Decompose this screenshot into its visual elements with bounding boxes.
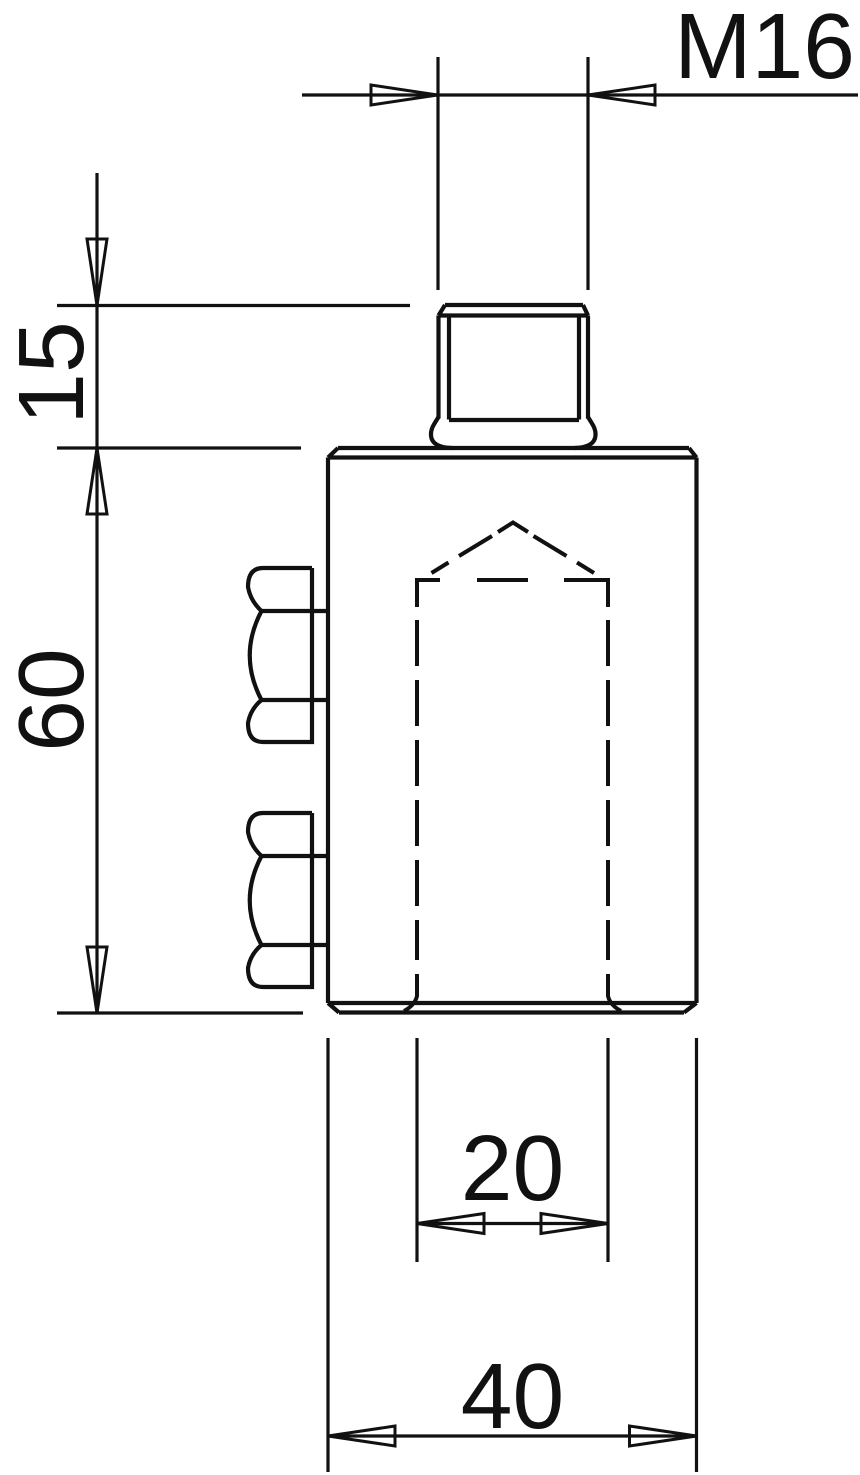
threaded-stud — [431, 305, 596, 448]
bore-width-label: 20 — [461, 1116, 564, 1220]
dimension-stud-length: 15 — [0, 173, 410, 1013]
stud-length-label: 15 — [0, 321, 103, 424]
dimension-bore-width: 20 — [417, 1038, 608, 1262]
thread-label: M16 — [674, 0, 855, 98]
part-body — [328, 448, 697, 1013]
hidden-bore — [404, 523, 621, 1012]
hex-bolt-upper — [248, 568, 329, 742]
hex-bolt-lower — [248, 813, 329, 987]
bore-drill-cone-dashes — [432, 523, 595, 574]
dimension-thread: M16 — [302, 0, 858, 290]
stud-outline — [439, 305, 589, 420]
body-outline — [328, 448, 697, 1013]
hex-head-outline — [248, 568, 312, 742]
body-height-label: 60 — [0, 648, 103, 751]
stud-length-lines — [57, 173, 410, 1013]
bore-entry-chamfers — [404, 974, 621, 1011]
stud-undercut-left — [431, 417, 452, 448]
body-width-label: 40 — [461, 1344, 564, 1448]
dimension-body-width: 40 — [328, 1038, 697, 1472]
technical-drawing-sheet: M16 15 60 20 40 — [0, 0, 860, 1475]
bore-shoulder-dashes — [417, 580, 608, 607]
hex-facet-lines — [261, 611, 329, 700]
technical-drawing: M16 15 60 20 40 — [0, 0, 860, 1475]
